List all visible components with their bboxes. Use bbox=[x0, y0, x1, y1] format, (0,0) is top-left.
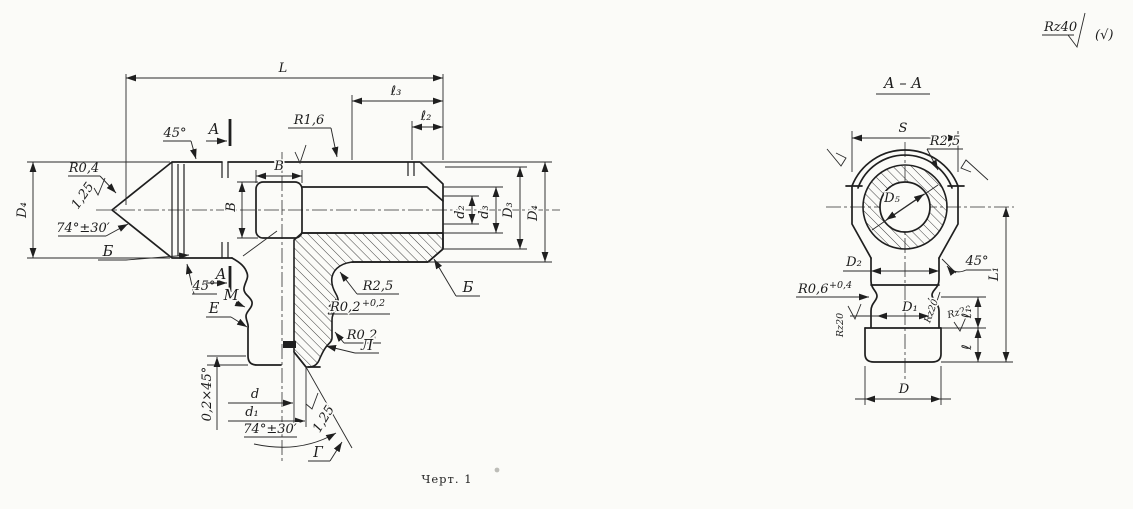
surface-letter-B-right: Б bbox=[462, 280, 474, 296]
radius-label-R16: R1,6 bbox=[293, 113, 324, 128]
roughness-check-icon bbox=[827, 149, 846, 166]
section-letter-top: A bbox=[207, 122, 219, 138]
surface-letter-B-left: Б bbox=[102, 244, 114, 260]
dim-label-45-section: 45° bbox=[964, 254, 988, 269]
dim-label-D3: D₃ bbox=[501, 202, 516, 219]
roughness-label-125-bottom: 1,25 bbox=[310, 403, 338, 436]
leader-E bbox=[231, 317, 247, 327]
dim-label-L1: L₁ bbox=[987, 267, 1002, 282]
dim-label-l1: ℓ₁ bbox=[960, 308, 975, 320]
dim-label-d2: d₂ bbox=[453, 205, 468, 219]
roughness-label-rz20-inner: Rz20 bbox=[922, 298, 941, 325]
roughness-flag-icon bbox=[848, 304, 861, 319]
ext-lines-l3-l2 bbox=[352, 95, 412, 160]
corner-roughness-value: Rz40 bbox=[1043, 20, 1077, 35]
stem-outline bbox=[865, 328, 941, 362]
dim-label-D2: D₂ bbox=[845, 255, 862, 270]
surface-letter-M: М bbox=[223, 288, 240, 304]
dim-label-45-top: 45° bbox=[162, 126, 186, 141]
roughness-label-125-left: 1,25 bbox=[69, 180, 98, 212]
radius-label-R02a: R0,2 bbox=[329, 300, 360, 315]
leader-B-right bbox=[434, 259, 456, 296]
ext-lines-l1-l bbox=[941, 297, 1013, 362]
corner-roughness-note: Rz40 (√) bbox=[1042, 13, 1113, 47]
leader-R16 bbox=[331, 128, 337, 157]
radius-label-R25-section: R2,5 bbox=[929, 134, 960, 149]
radius-label-R04: R0,4 bbox=[68, 161, 99, 176]
dim-label-l2: ℓ₂ bbox=[420, 109, 432, 124]
radius-label-R06: R0,6 bbox=[797, 282, 828, 297]
dim-label-B-horizontal: В bbox=[273, 159, 284, 174]
dim-label-S: S bbox=[899, 121, 908, 136]
angle-label-74-top: 74°±30′ bbox=[56, 221, 109, 236]
section-letter-mid: A bbox=[214, 267, 226, 283]
roughness-check-icon bbox=[961, 160, 988, 180]
radius-tol-R06: +0,4 bbox=[829, 280, 852, 291]
surface-letter-G: Г bbox=[312, 445, 324, 461]
break-line bbox=[243, 231, 277, 256]
figure-caption: Черт. 1 bbox=[421, 472, 472, 486]
dim-label-D1: D₁ bbox=[901, 300, 918, 315]
leader-L-letter bbox=[326, 346, 355, 353]
dim-label-L: L bbox=[278, 61, 288, 76]
roughness-check-icon bbox=[295, 145, 306, 163]
leader-R25 bbox=[340, 272, 357, 294]
bore-seat-edge bbox=[283, 341, 296, 348]
roughness-check-icon bbox=[94, 178, 105, 195]
roughness-label-rz20-left: Rz20 bbox=[835, 313, 846, 338]
dim-label-l: ℓ bbox=[960, 344, 975, 350]
radius-tol-R02a: +0,2 bbox=[362, 298, 385, 309]
surface-letter-E: Е bbox=[208, 301, 220, 317]
angle-label-74-bottom: 74°±30′ bbox=[243, 422, 296, 437]
drawing-canvas: L ℓ₃ ℓ₂ 45° A R1,6 R0,4 1,25 D₄ 74°±30′ … bbox=[0, 0, 1133, 509]
dim-label-d1: d₁ bbox=[245, 405, 259, 420]
section-view: А – А S R2,5 D₅ D₂ 45° bbox=[796, 76, 1014, 405]
dim-label-d: d bbox=[251, 387, 259, 402]
dim-label-D4-left: D₄ bbox=[15, 202, 30, 219]
leader-45-top bbox=[191, 141, 196, 159]
leader-R02b bbox=[335, 332, 344, 343]
dim-label-l3: ℓ₃ bbox=[390, 84, 402, 99]
paper-smudge bbox=[495, 468, 500, 473]
roughness-check-icon bbox=[306, 393, 318, 409]
dim-label-chamfer02: 0,2×45° bbox=[200, 367, 215, 422]
dim-label-D5: D₅ bbox=[883, 191, 900, 206]
dim-label-B-vertical: В bbox=[224, 202, 239, 213]
ext-lines-chamfer02 bbox=[207, 356, 248, 365]
corner-rest-surfaces-mark: (√) bbox=[1095, 28, 1113, 43]
dim-label-d3: d₃ bbox=[477, 205, 492, 219]
main-view: L ℓ₃ ℓ₂ 45° A R1,6 R0,4 1,25 D₄ 74°±30′ … bbox=[15, 61, 560, 462]
surface-letter-L: Л bbox=[360, 338, 374, 354]
dim-label-D: D bbox=[898, 382, 910, 397]
dim-label-D4-right: D₄ bbox=[526, 205, 541, 222]
leader-G-letter bbox=[330, 442, 342, 461]
radius-label-R25: R2,5 bbox=[362, 279, 393, 294]
section-title: А – А bbox=[883, 76, 922, 92]
engineering-drawing-sheet: L ℓ₃ ℓ₂ 45° A R1,6 R0,4 1,25 D₄ 74°±30′ … bbox=[0, 0, 1133, 509]
dim-label-45-mid: 45° bbox=[191, 279, 215, 294]
